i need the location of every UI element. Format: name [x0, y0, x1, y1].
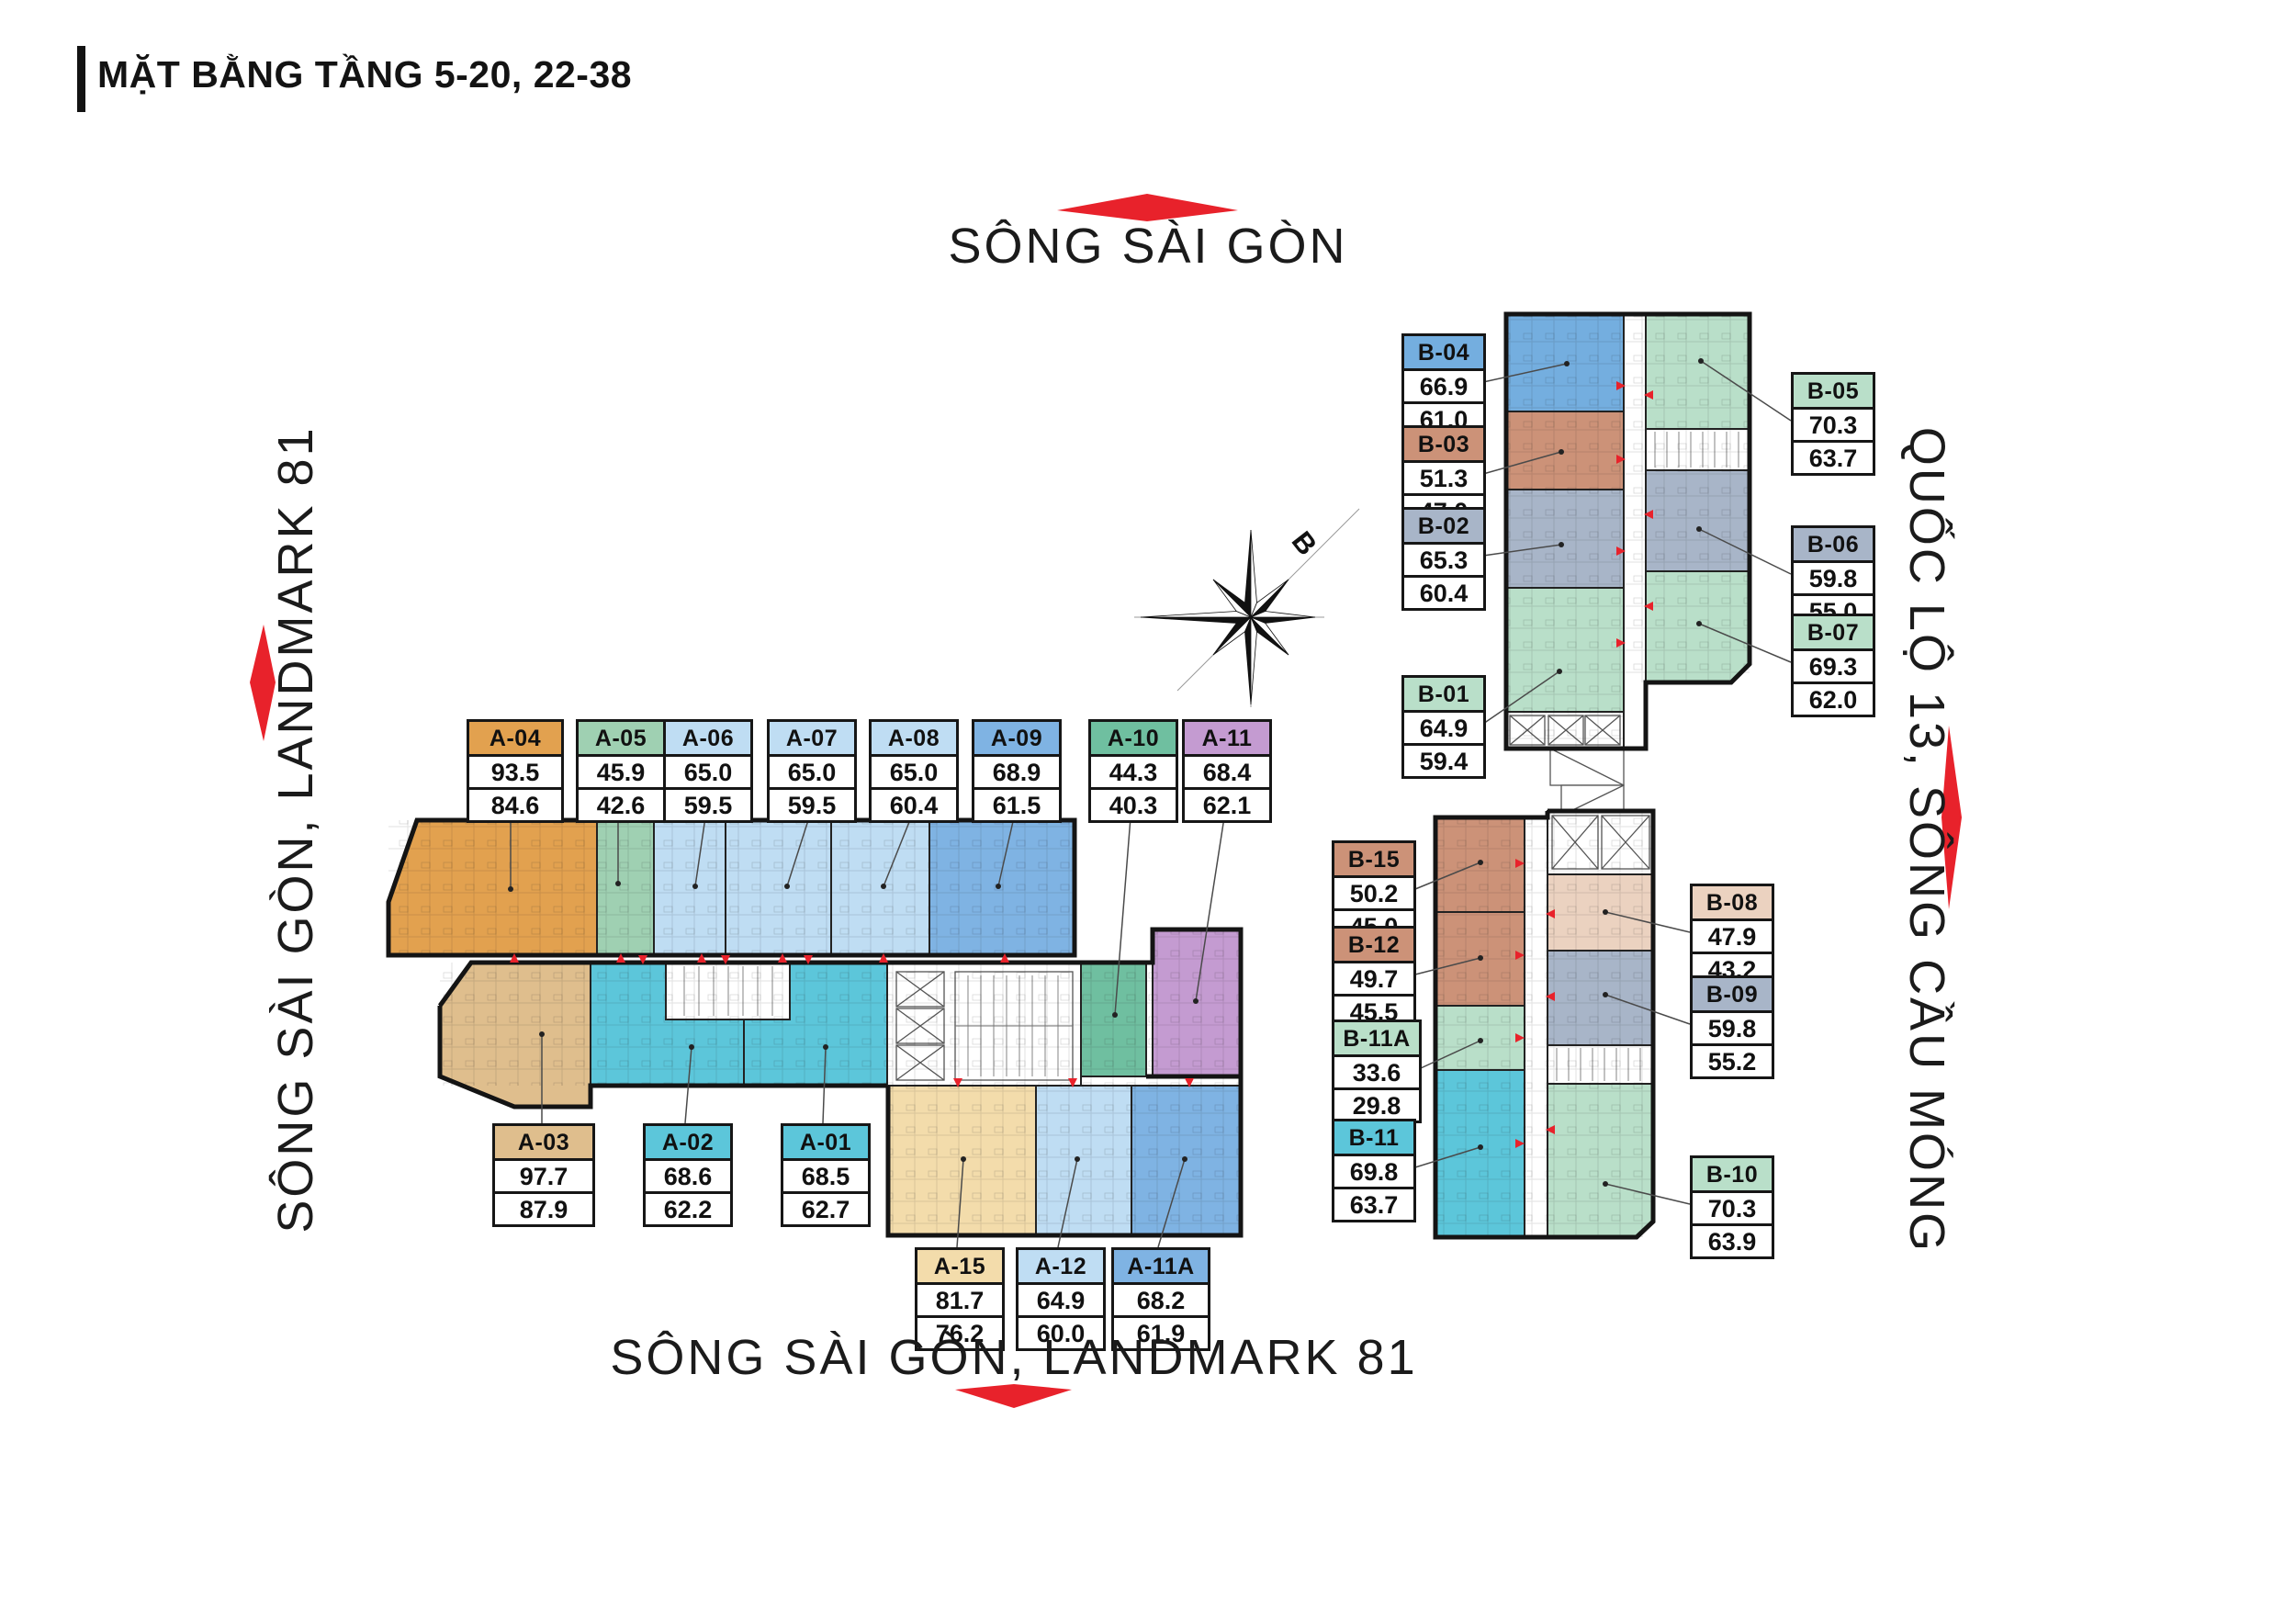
- unit-label-B-07: B-07 69.3 62.0: [1791, 614, 1875, 717]
- unit-label-B-01: B-01 64.9 59.4: [1401, 675, 1486, 779]
- unit-label-A-07: A-07 65.0 59.5: [767, 719, 857, 823]
- unit-label-A-04: A-04 93.5 84.6: [467, 719, 564, 823]
- unit-label-A-03: A-03 97.7 87.9: [492, 1123, 595, 1227]
- unit-label-B-12: B-12 49.7 45.5: [1332, 926, 1416, 1030]
- landmark-left: SÔNG SÀI GÒN, LANDMARK 81: [267, 425, 324, 1233]
- landmark-top: SÔNG SÀI GÒN: [948, 218, 1347, 275]
- unit-label-B-05: B-05 70.3 63.7: [1791, 372, 1875, 476]
- landmark-bottom: SÔNG SÀI GÒN, LANDMARK 81: [610, 1329, 1417, 1386]
- floorplan-page: B MẶT BẰNG TẦNG 5-20, 22-38 SÔNG SÀI GÒN…: [0, 0, 2296, 1622]
- unit-label-A-05: A-05 45.9 42.6: [576, 719, 666, 823]
- page-title: MẶT BẰNG TẦNG 5-20, 22-38: [97, 53, 632, 96]
- unit-label-A-02: A-02 68.6 62.2: [643, 1123, 733, 1227]
- unit-label-A-01: A-01 68.5 62.7: [781, 1123, 871, 1227]
- unit-label-B-08: B-08 47.9 43.2: [1690, 884, 1774, 987]
- landmark-right: QUỐC LỘ 13, SÔNG CẦU MÓNG: [1898, 427, 1955, 1254]
- south-direction-arrow: [955, 1384, 1072, 1408]
- unit-label-A-11: A-11 68.4 62.1: [1182, 719, 1272, 823]
- unit-label-B-11A: B-11A 33.6 29.8: [1332, 1019, 1422, 1123]
- unit-label-A-10: A-10 44.3 40.3: [1088, 719, 1178, 823]
- unit-label-A-08: A-08 65.0 60.4: [869, 719, 959, 823]
- unit-label-A-09: A-09 68.9 61.5: [972, 719, 1062, 823]
- unit-label-B-04: B-04 66.9 61.0: [1401, 333, 1486, 437]
- compass-rose: B: [1134, 509, 1359, 707]
- title-accent-bar: [77, 46, 85, 112]
- unit-label-B-11: B-11 69.8 63.7: [1332, 1119, 1416, 1222]
- unit-label-B-02: B-02 65.3 60.4: [1401, 507, 1486, 611]
- unit-label-B-10: B-10 70.3 63.9: [1690, 1155, 1774, 1259]
- compass-north-label: B: [1286, 525, 1323, 561]
- unit-label-A-06: A-06 65.0 59.5: [663, 719, 753, 823]
- unit-label-B-09: B-09 59.8 55.2: [1690, 975, 1774, 1079]
